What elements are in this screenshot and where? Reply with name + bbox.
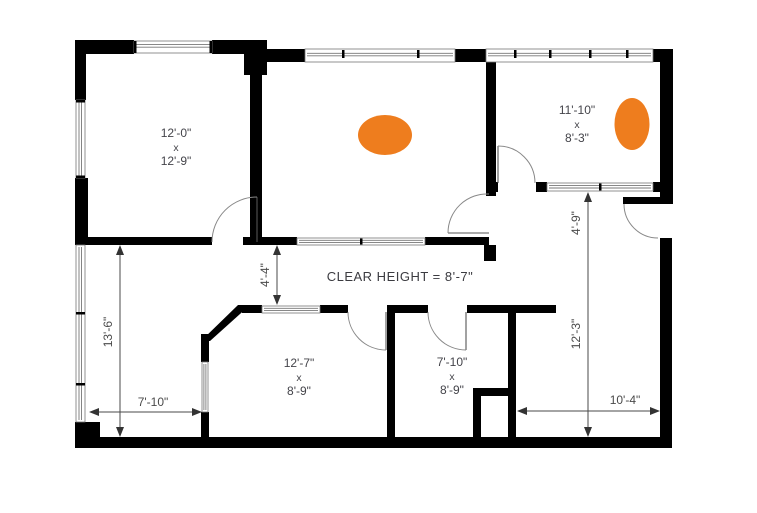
door-arc [448, 194, 489, 233]
wall-segment [484, 245, 496, 261]
room-width-text: 12'-7" [284, 356, 315, 370]
arrowhead-left [517, 407, 527, 415]
wall-segment [243, 237, 297, 245]
door-arc [498, 146, 535, 183]
window-corridor-lower [262, 306, 320, 313]
windows [76, 41, 653, 422]
wall-segment [212, 40, 244, 54]
room-label-bottom-middle: 12'-7" x 8'-9" [284, 356, 315, 398]
arrowhead-down [273, 295, 281, 305]
wall-segment [486, 182, 498, 192]
door-room2 [448, 194, 489, 233]
wall-segment [455, 49, 486, 62]
orange-marker-center-room [358, 115, 412, 155]
arrowhead-up [116, 245, 124, 255]
room-x-text: x [574, 119, 580, 131]
door-room5 [428, 312, 466, 350]
floor-plan: 13'-6" 7'-10" 4'-4" 4'-9" 12'-3" 10'-4" [0, 0, 757, 513]
wall-segment [653, 182, 673, 192]
room-x-text: x [173, 142, 179, 154]
wall-segment [473, 388, 481, 445]
dimension-label: 7'-10" [138, 395, 169, 409]
room-x-text: x [449, 371, 455, 383]
dimension-label: 10'-4" [610, 393, 641, 407]
room-width-text: 7'-10" [437, 355, 468, 369]
wall-segment [75, 178, 88, 245]
dimension-label: 13'-6" [101, 317, 115, 348]
door-arc [348, 312, 386, 350]
room-height-text: 12'-9" [161, 154, 192, 168]
room-width-text: 12'-0" [161, 126, 192, 140]
orange-marker-right-room [615, 98, 650, 150]
window-corridor-upper [297, 238, 425, 245]
door-room4 [348, 312, 386, 350]
arrowhead-left [89, 408, 99, 416]
room-height-text: 8'-3" [565, 131, 589, 145]
wall-segment [83, 237, 212, 245]
room-x-text: x [296, 372, 302, 384]
room-label-top-right: 11'-10" x 8'-3" [559, 103, 595, 145]
window-room3-bottom [547, 183, 653, 191]
room-height-text: 8'-9" [287, 384, 311, 398]
arrowhead-up [273, 245, 281, 255]
wall-segment [660, 238, 672, 448]
wall-segment [320, 305, 348, 313]
dimension-corridor-width: 4'-4" [258, 245, 281, 305]
doors [212, 146, 658, 350]
clear-height-note: CLEAR HEIGHT = 8'-7" [327, 269, 474, 284]
door-arc [428, 312, 466, 350]
window-top-room3 [486, 49, 653, 62]
room-label-bottom-right: 7'-10" x 8'-9" [437, 355, 468, 397]
dimension-label: 4'-9" [569, 211, 583, 235]
wall-segment [250, 54, 262, 245]
wall-segment [387, 305, 395, 445]
wall-segment [201, 334, 209, 362]
arrowhead-up [584, 192, 592, 202]
door-room3 [498, 146, 535, 183]
dimension-label: 12'-3" [569, 319, 583, 350]
wall-segment [508, 305, 516, 445]
wall-segment [201, 412, 209, 445]
window-top-room2 [305, 49, 455, 62]
room-height-text: 8'-9" [440, 383, 464, 397]
window-left-lower [76, 245, 85, 422]
wall-segment [75, 40, 86, 100]
arrowhead-right [192, 408, 202, 416]
wall-segment [536, 182, 547, 192]
arrowhead-right [650, 407, 660, 415]
dimension-label: 4'-4" [258, 263, 272, 287]
wall-segment [425, 237, 489, 245]
dimension-right-depths: 4'-9" 12'-3" [569, 192, 592, 437]
wall-segment [267, 49, 305, 62]
door-entry-right [624, 204, 658, 238]
dimension-left-room-width: 7'-10" [89, 395, 202, 416]
window-left-upper [76, 100, 85, 178]
door-arc [624, 204, 658, 238]
wall-segment [623, 197, 672, 204]
arrowhead-down [584, 427, 592, 437]
room-width-text: 11'-10" [559, 103, 595, 117]
wall-segment [242, 305, 262, 313]
wall-segment [660, 49, 673, 204]
room-label-top-left: 12'-0" x 12'-9" [161, 126, 192, 168]
wall-segment [75, 437, 672, 448]
dimensions: 13'-6" 7'-10" 4'-4" 4'-9" 12'-3" 10'-4" [89, 192, 660, 437]
window-top-room1 [134, 41, 212, 53]
window-interior-left [202, 362, 208, 412]
wall-segment [486, 62, 496, 196]
dimension-left-room-height: 13'-6" [101, 245, 124, 437]
arrowhead-down [116, 427, 124, 437]
